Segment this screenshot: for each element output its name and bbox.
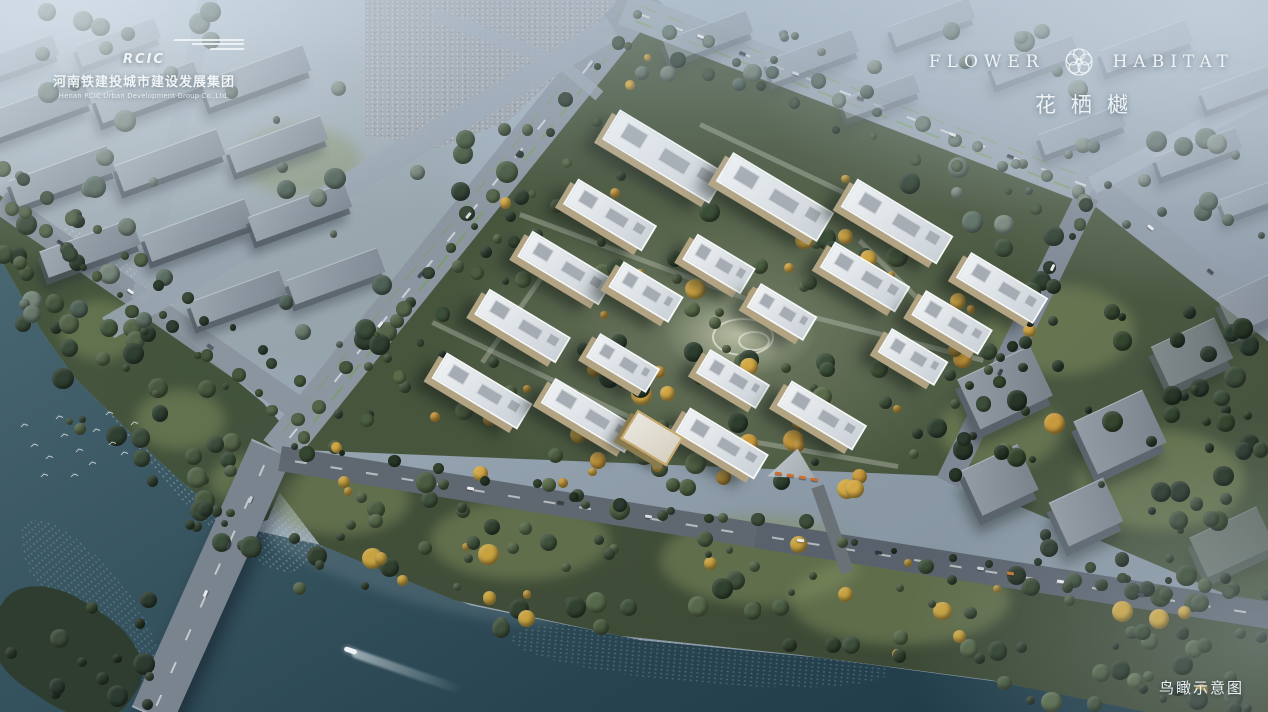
- developer-name-en: Henan RCIC Urban Development Group Co.,L…: [44, 92, 244, 100]
- aerial-rendering: ︿︿︿︿︿︿︿︿︿︿︿︿︿︿ RCIC 河南铁建投城市建设发展集团 Henan …: [0, 0, 1268, 712]
- speed-line-icon: [209, 48, 245, 50]
- speed-line-icon: [191, 43, 245, 45]
- camellia-flower-icon: [1059, 42, 1099, 82]
- project-name-cn: 花栖樾: [929, 89, 1234, 119]
- developer-logo-text: RCIC: [44, 52, 244, 67]
- project-logo: FLOWER HABITAT 花栖樾: [929, 42, 1234, 119]
- developer-logo: RCIC 河南铁建投城市建设发展集团 Henan RCIC Urban Deve…: [44, 36, 244, 100]
- developer-name-cn: 河南铁建投城市建设发展集团: [44, 71, 244, 90]
- project-name-right: HABITAT: [1113, 52, 1234, 72]
- speed-line-icon: [173, 39, 245, 41]
- project-name-left: FLOWER: [929, 52, 1045, 72]
- view-caption: 鸟瞰示意图: [1159, 677, 1244, 698]
